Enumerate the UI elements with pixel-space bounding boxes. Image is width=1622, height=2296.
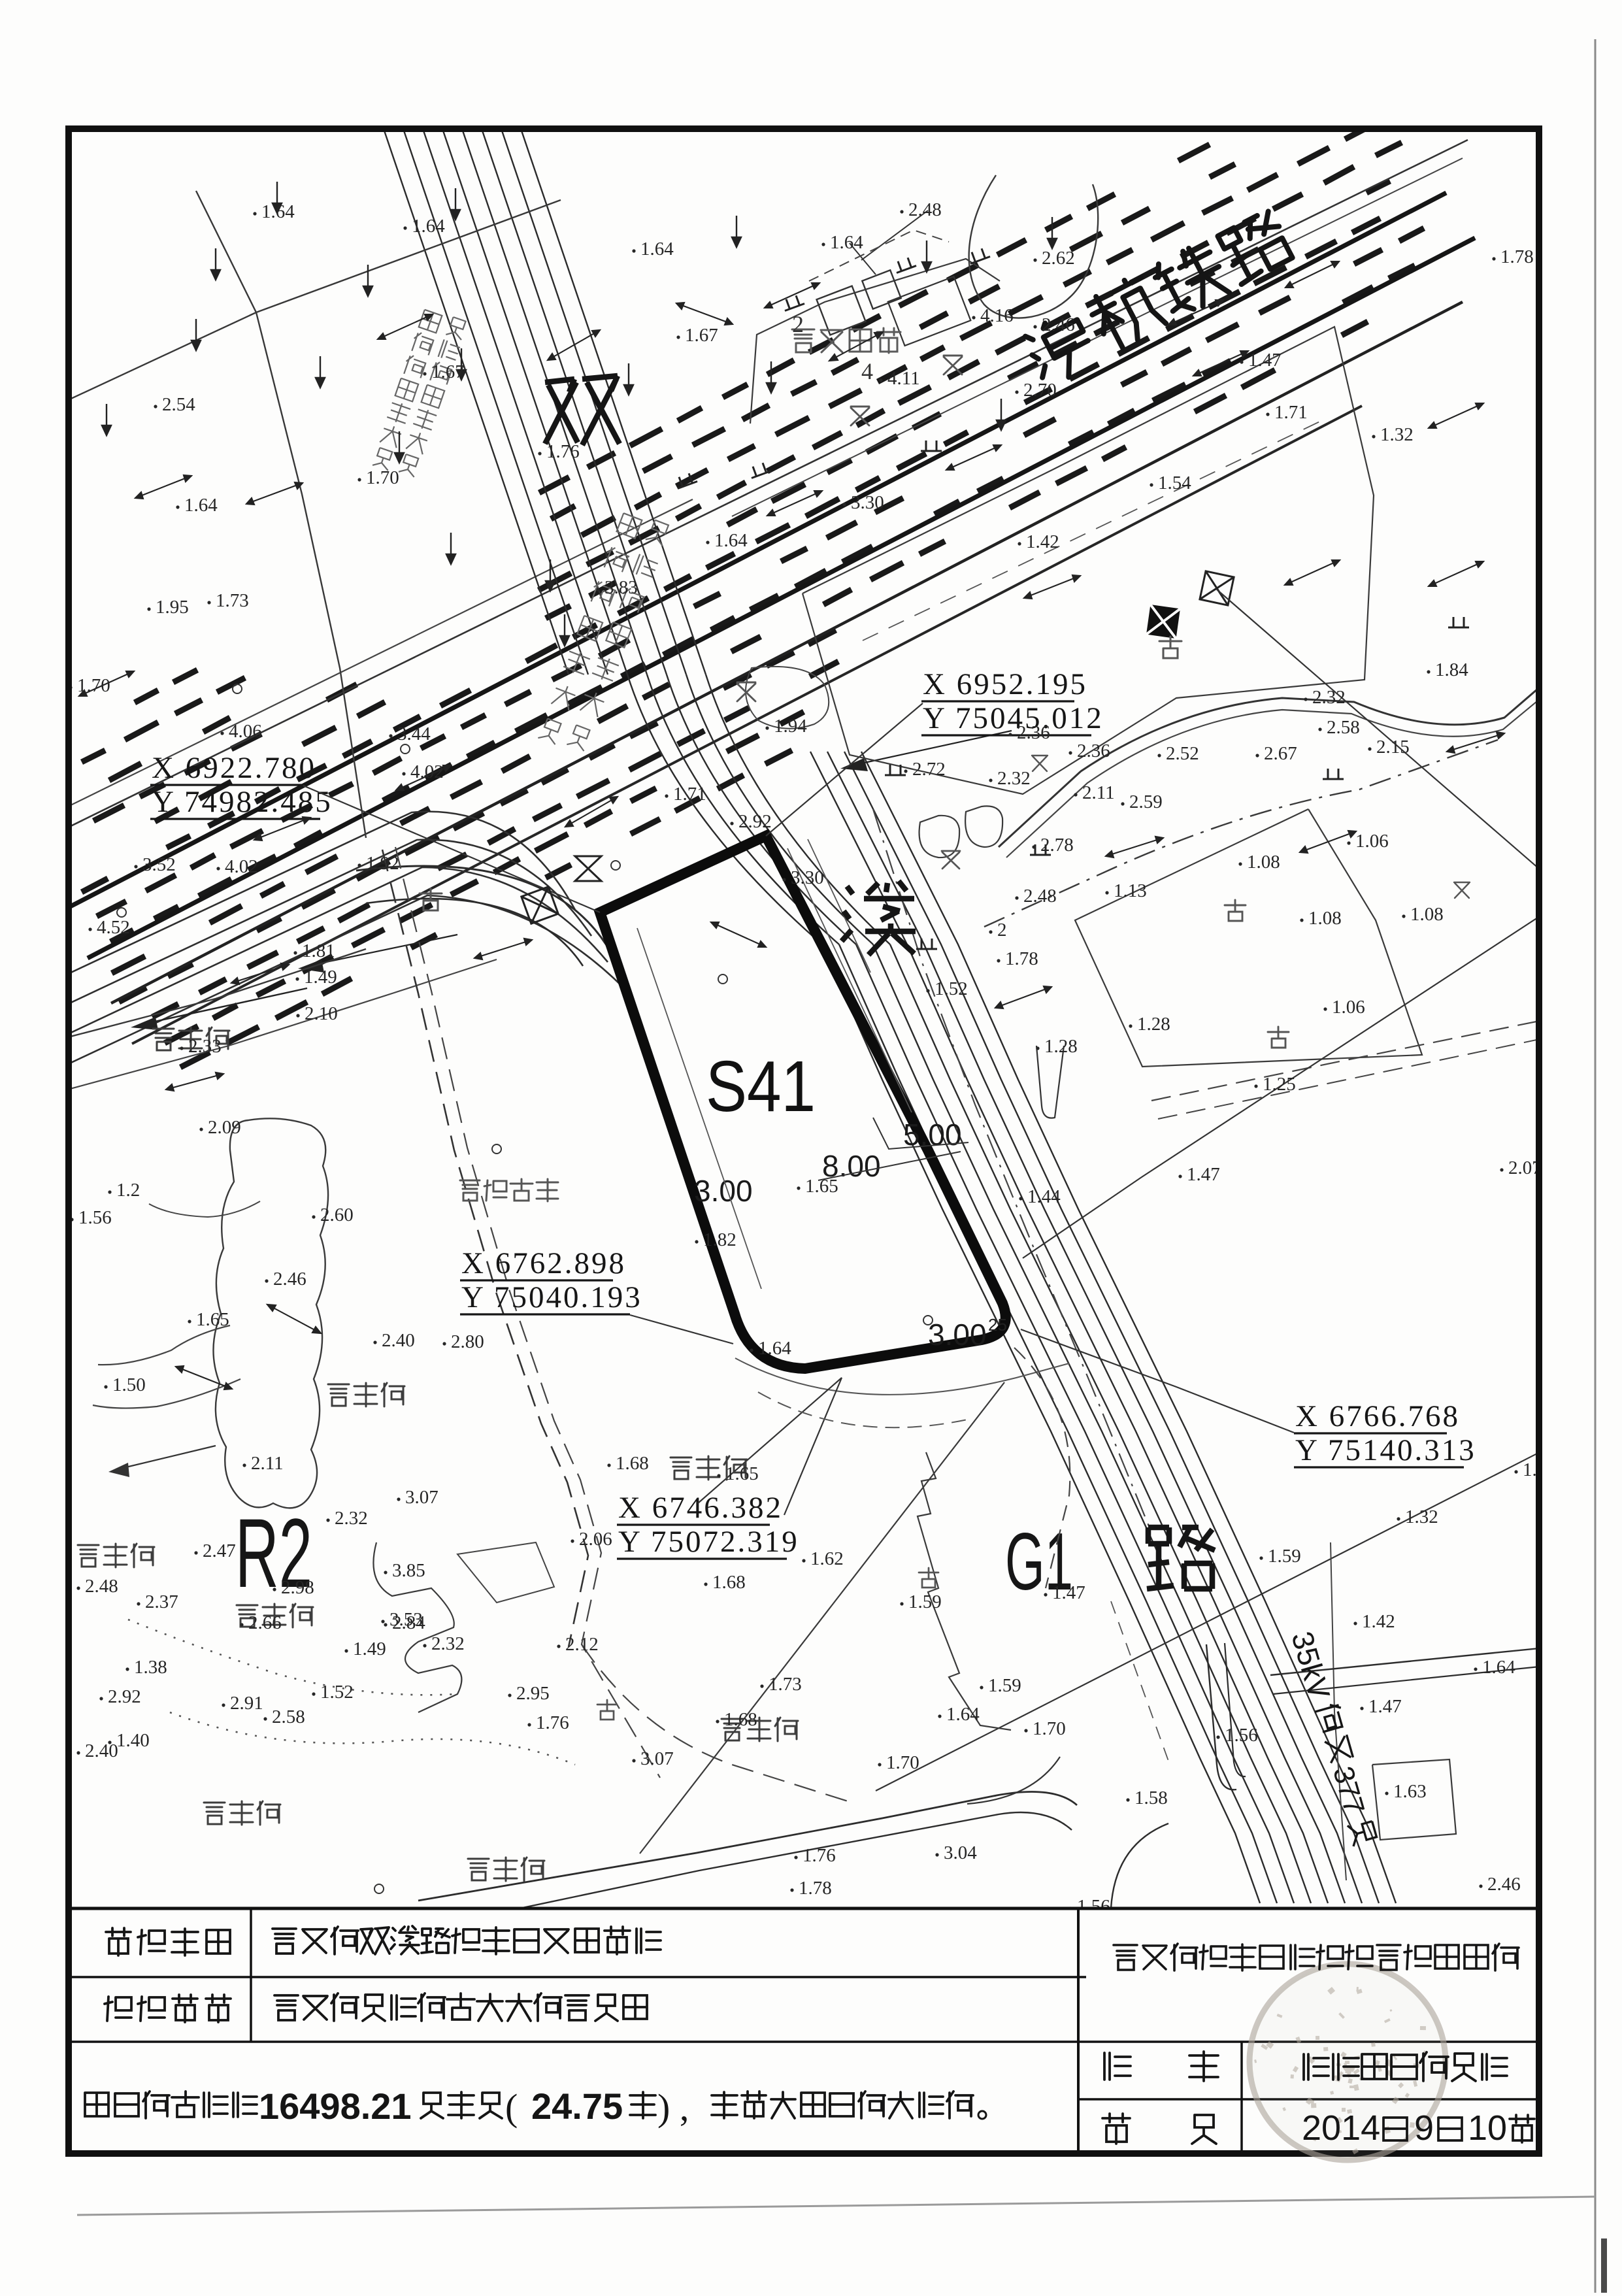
svg-text:4.06: 4.06 — [229, 721, 262, 742]
svg-text:2.32: 2.32 — [335, 1508, 368, 1529]
svg-text:2.46: 2.46 — [273, 1269, 306, 1289]
svg-text:2.36: 2.36 — [1077, 740, 1110, 761]
svg-text:1.2: 1.2 — [116, 1180, 140, 1201]
svg-text:1.47: 1.47 — [1052, 1582, 1085, 1603]
svg-text:2: 2 — [997, 920, 1007, 940]
svg-text:1.82: 1.82 — [703, 1229, 737, 1250]
svg-text:1.73: 1.73 — [769, 1674, 802, 1695]
svg-text:4.11: 4.11 — [887, 368, 920, 389]
svg-text:1.59: 1.59 — [988, 1675, 1021, 1696]
svg-text:1.47: 1.47 — [1187, 1164, 1220, 1185]
svg-text:1.64: 1.64 — [184, 495, 218, 516]
svg-text:(: ( — [505, 2086, 518, 2129]
svg-text:1.67: 1.67 — [685, 325, 718, 346]
svg-text:24.75: 24.75 — [531, 2086, 623, 2127]
svg-text:) ,: ) , — [657, 2086, 689, 2129]
svg-text:1.42: 1.42 — [1026, 531, 1059, 552]
svg-text:1.71: 1.71 — [673, 784, 706, 805]
svg-text:X 6922.780: X 6922.780 — [152, 751, 316, 785]
svg-text:2.33: 2.33 — [188, 1036, 222, 1057]
svg-text:2.46: 2.46 — [1487, 1874, 1521, 1895]
svg-text:1.47: 1.47 — [1248, 350, 1282, 371]
svg-text:2.92: 2.92 — [108, 1686, 141, 1707]
svg-text:3.07: 3.07 — [640, 1748, 674, 1769]
svg-text:1.54: 1.54 — [1158, 473, 1191, 493]
svg-text:X 6766.768: X 6766.768 — [1295, 1399, 1460, 1433]
svg-text:2.06: 2.06 — [579, 1529, 612, 1550]
svg-text:1.81: 1.81 — [302, 940, 335, 961]
svg-text:S41: S41 — [706, 1046, 816, 1127]
svg-text:2.70: 2.70 — [1023, 380, 1057, 401]
svg-text:4.02: 4.02 — [410, 761, 444, 782]
svg-text:2: 2 — [792, 311, 804, 337]
svg-text:1.08: 1.08 — [1410, 904, 1444, 925]
svg-text:1.65: 1.65 — [196, 1309, 229, 1330]
svg-text:2.36: 2.36 — [1017, 722, 1050, 743]
svg-text:4.16: 4.16 — [980, 305, 1014, 326]
svg-text:1.50: 1.50 — [112, 1374, 146, 1395]
svg-text:1.70: 1.70 — [886, 1752, 919, 1773]
svg-text:1.64: 1.64 — [714, 530, 748, 551]
svg-text:1.56: 1.56 — [1225, 1725, 1258, 1746]
svg-text:2.78: 2.78 — [1040, 835, 1074, 856]
svg-text:2.80: 2.80 — [451, 1331, 484, 1352]
svg-text:Y 75072.319: Y 75072.319 — [618, 1525, 799, 1559]
svg-text:3.52: 3.52 — [142, 854, 176, 875]
svg-text:2.91: 2.91 — [230, 1693, 263, 1714]
svg-text:10: 10 — [1468, 2108, 1507, 2148]
svg-text:2.32: 2.32 — [431, 1633, 465, 1654]
svg-text:1.92: 1.92 — [366, 853, 399, 874]
svg-text:2.52: 2.52 — [1166, 743, 1199, 764]
svg-text:3.30: 3.30 — [791, 867, 824, 888]
svg-text:X 6746.382: X 6746.382 — [618, 1491, 783, 1525]
svg-text:1.47: 1.47 — [1368, 1696, 1402, 1717]
svg-text:2.10: 2.10 — [305, 1003, 338, 1024]
svg-text:1.64: 1.64 — [830, 232, 863, 253]
svg-text:2.59: 2.59 — [1129, 791, 1163, 812]
svg-text:1.84: 1.84 — [1435, 659, 1468, 680]
svg-text:1.44: 1.44 — [1027, 1186, 1061, 1207]
svg-text:1.70: 1.70 — [77, 675, 110, 696]
svg-text:2.95: 2.95 — [516, 1683, 550, 1704]
svg-text:1.78: 1.78 — [799, 1878, 832, 1899]
svg-text:1.70: 1.70 — [1033, 1718, 1066, 1739]
svg-text:1.52: 1.52 — [935, 978, 968, 999]
svg-text:1.38: 1.38 — [134, 1657, 167, 1678]
svg-text:16498.21: 16498.21 — [259, 2086, 412, 2127]
svg-text:1.64: 1.64 — [758, 1338, 791, 1359]
svg-text:1.64: 1.64 — [261, 201, 295, 222]
svg-text:X 6762.898: X 6762.898 — [461, 1246, 626, 1280]
svg-text:25: 25 — [988, 1315, 1007, 1335]
svg-text:1.59: 1.59 — [908, 1591, 942, 1612]
svg-text:1.62: 1.62 — [810, 1548, 844, 1569]
svg-text:Y 74982.485: Y 74982.485 — [152, 785, 333, 819]
svg-text:2.58: 2.58 — [1327, 717, 1360, 738]
svg-text:1.08: 1.08 — [1308, 908, 1342, 929]
svg-text:1.68: 1.68 — [616, 1453, 649, 1474]
svg-text:1.58: 1.58 — [1134, 1788, 1168, 1808]
svg-text:Y 75140.313: Y 75140.313 — [1295, 1433, 1476, 1467]
svg-text:2.11: 2.11 — [251, 1453, 284, 1474]
svg-text:2.54: 2.54 — [162, 394, 195, 415]
svg-text:1.13: 1.13 — [1114, 880, 1147, 901]
svg-text:Y 75045.012: Y 75045.012 — [923, 701, 1104, 735]
svg-text:1.70: 1.70 — [366, 467, 399, 488]
svg-text:2.40: 2.40 — [382, 1330, 415, 1351]
svg-text:1.95: 1.95 — [156, 597, 189, 618]
svg-text:1.28: 1.28 — [1137, 1014, 1170, 1035]
svg-text:9: 9 — [1414, 2108, 1434, 2148]
svg-text:1.76: 1.76 — [546, 441, 580, 462]
svg-text:1.64: 1.64 — [412, 216, 445, 237]
svg-text:2.11: 2.11 — [1082, 782, 1115, 803]
svg-text:1.49: 1.49 — [353, 1639, 386, 1659]
svg-text:1.67: 1.67 — [431, 361, 465, 382]
svg-text:1.78: 1.78 — [1500, 246, 1534, 267]
svg-text:1.64: 1.64 — [1482, 1657, 1515, 1678]
svg-text:2.32: 2.32 — [997, 768, 1031, 789]
svg-text:3.83: 3.83 — [604, 577, 638, 598]
svg-text:4.52: 4.52 — [97, 917, 130, 938]
svg-text:3.00: 3.00 — [928, 1318, 987, 1352]
svg-text:1.65: 1.65 — [805, 1176, 838, 1197]
svg-text:Y 75040.193: Y 75040.193 — [461, 1280, 642, 1314]
svg-text:2.60: 2.60 — [320, 1205, 354, 1225]
svg-text:2.48: 2.48 — [1023, 886, 1057, 907]
svg-text:2.66: 2.66 — [248, 1612, 282, 1633]
svg-text:1.56: 1.56 — [78, 1207, 112, 1228]
svg-text:2.40: 2.40 — [85, 1740, 118, 1761]
svg-text:1.64: 1.64 — [946, 1704, 980, 1725]
svg-text:2.72: 2.72 — [912, 759, 946, 780]
svg-text:2.58: 2.58 — [272, 1706, 305, 1727]
svg-text:3.44: 3.44 — [397, 724, 431, 744]
svg-text:1.32: 1.32 — [1380, 424, 1414, 445]
svg-text:2.09: 2.09 — [208, 1117, 241, 1138]
svg-text:1.06: 1.06 — [1355, 831, 1389, 852]
svg-text:1.64: 1.64 — [640, 239, 674, 259]
svg-text:1.08: 1.08 — [1247, 852, 1280, 873]
svg-text:3.04: 3.04 — [944, 1842, 977, 1863]
svg-text:1.94: 1.94 — [774, 716, 807, 737]
svg-text:1.68: 1.68 — [724, 1709, 757, 1730]
svg-text:4.02: 4.02 — [225, 856, 258, 877]
svg-text:1.76: 1.76 — [536, 1712, 569, 1733]
svg-text:1.63: 1.63 — [1393, 1781, 1427, 1802]
svg-text:1.49: 1.49 — [304, 967, 337, 988]
svg-text:4: 4 — [861, 358, 873, 384]
svg-text:1.40: 1.40 — [116, 1730, 150, 1751]
svg-text:1.65: 1.65 — [725, 1463, 759, 1484]
svg-text:1.59: 1.59 — [1268, 1546, 1301, 1567]
svg-text:1.73: 1.73 — [216, 590, 249, 611]
svg-text:1.42: 1.42 — [1362, 1611, 1395, 1632]
svg-text:3.53: 3.53 — [389, 1609, 423, 1630]
svg-text:1.32: 1.32 — [1405, 1506, 1438, 1527]
svg-text:1.06: 1.06 — [1332, 997, 1365, 1018]
svg-text:2.98: 2.98 — [281, 1577, 314, 1598]
svg-text:2.46: 2.46 — [1042, 314, 1075, 335]
svg-text:2.37: 2.37 — [145, 1591, 178, 1612]
svg-text:2.12: 2.12 — [565, 1634, 599, 1655]
svg-text:1.52: 1.52 — [320, 1682, 354, 1703]
svg-text:2.48: 2.48 — [85, 1576, 118, 1597]
svg-text:2.48: 2.48 — [908, 199, 942, 220]
svg-text:1.28: 1.28 — [1044, 1036, 1078, 1057]
svg-text:1.76: 1.76 — [803, 1845, 836, 1866]
svg-text:3.07: 3.07 — [405, 1487, 439, 1508]
svg-text:X 6952.195: X 6952.195 — [923, 667, 1087, 701]
svg-text:2.32: 2.32 — [1312, 687, 1346, 708]
svg-text:1.78: 1.78 — [1005, 948, 1038, 969]
svg-text:2.47: 2.47 — [203, 1540, 236, 1561]
svg-text:1.25: 1.25 — [1263, 1074, 1296, 1095]
svg-text:2.92: 2.92 — [738, 811, 772, 832]
svg-text:2.15: 2.15 — [1376, 737, 1410, 757]
svg-text:2014: 2014 — [1302, 2108, 1380, 2148]
svg-text:3.30: 3.30 — [851, 492, 884, 513]
svg-text:1.68: 1.68 — [712, 1572, 746, 1593]
svg-text:1.71: 1.71 — [1274, 402, 1308, 423]
svg-text:2.67: 2.67 — [1264, 743, 1297, 764]
svg-text:2.62: 2.62 — [1042, 248, 1075, 269]
svg-text:3.85: 3.85 — [392, 1560, 425, 1581]
